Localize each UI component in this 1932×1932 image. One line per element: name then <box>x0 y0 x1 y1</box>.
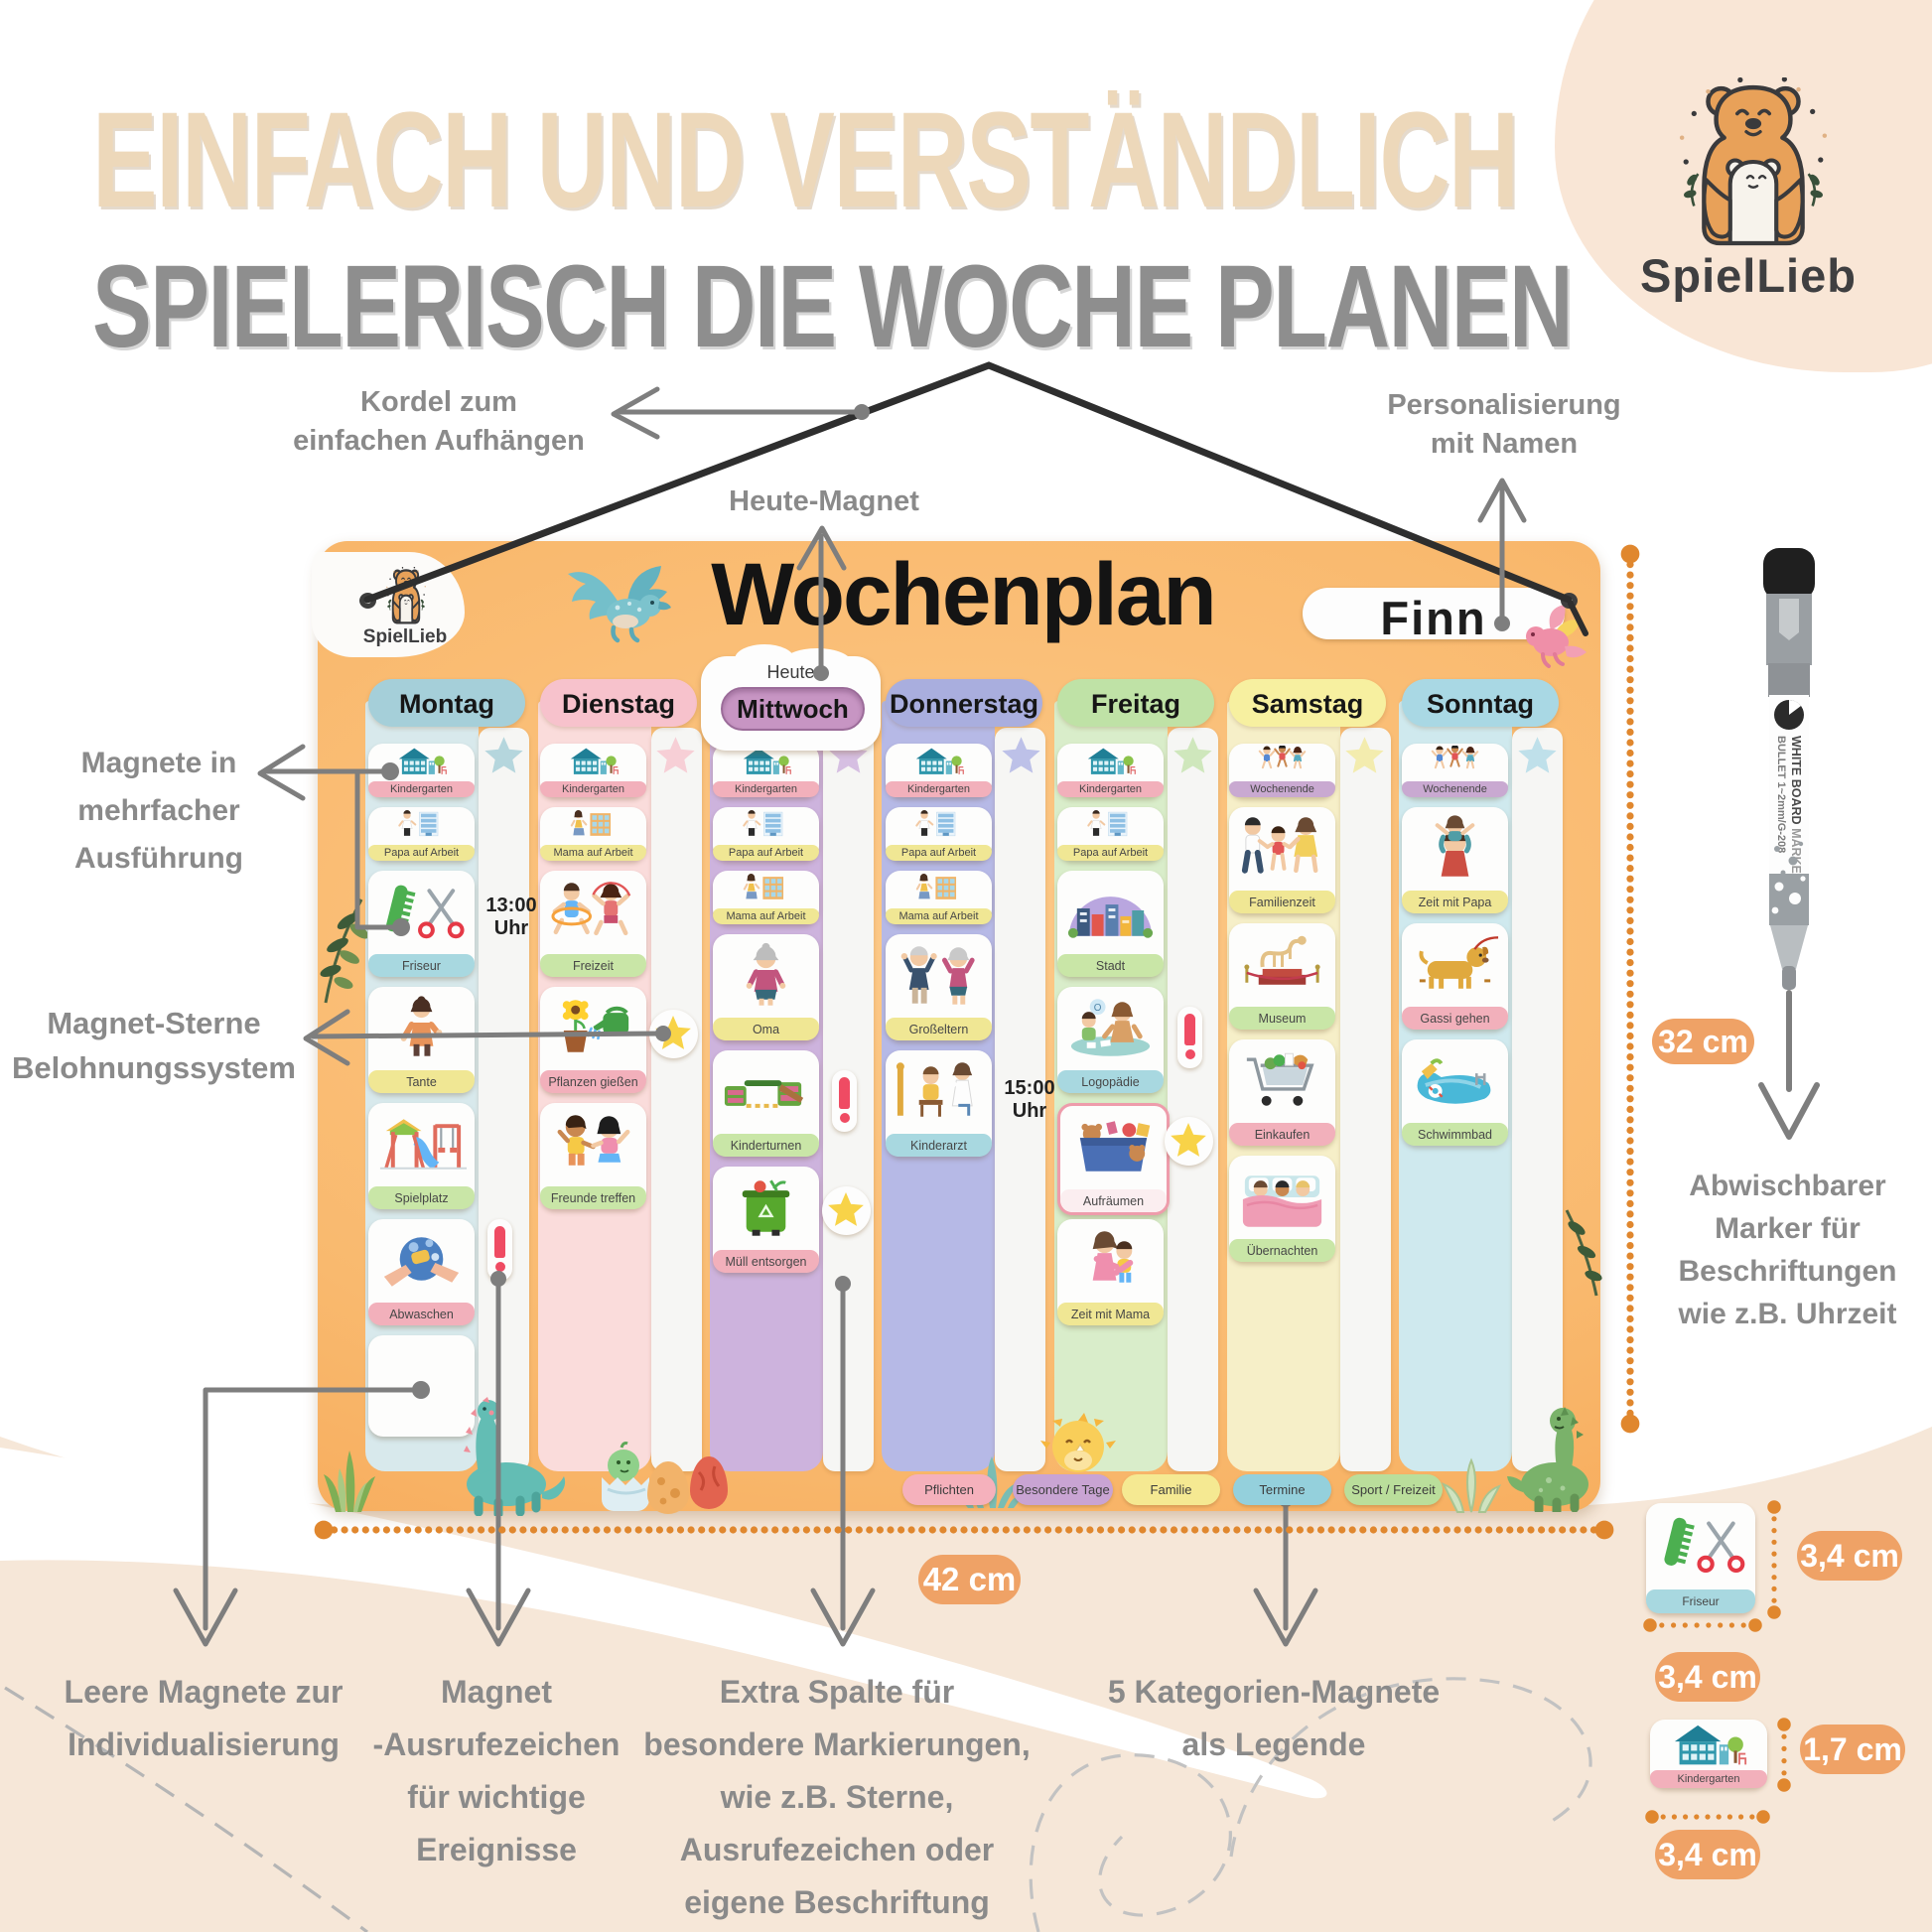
svg-text:O: O <box>1094 1003 1102 1014</box>
svg-text:BULLET 1~2mm/G-208: BULLET 1~2mm/G-208 <box>1775 736 1787 853</box>
